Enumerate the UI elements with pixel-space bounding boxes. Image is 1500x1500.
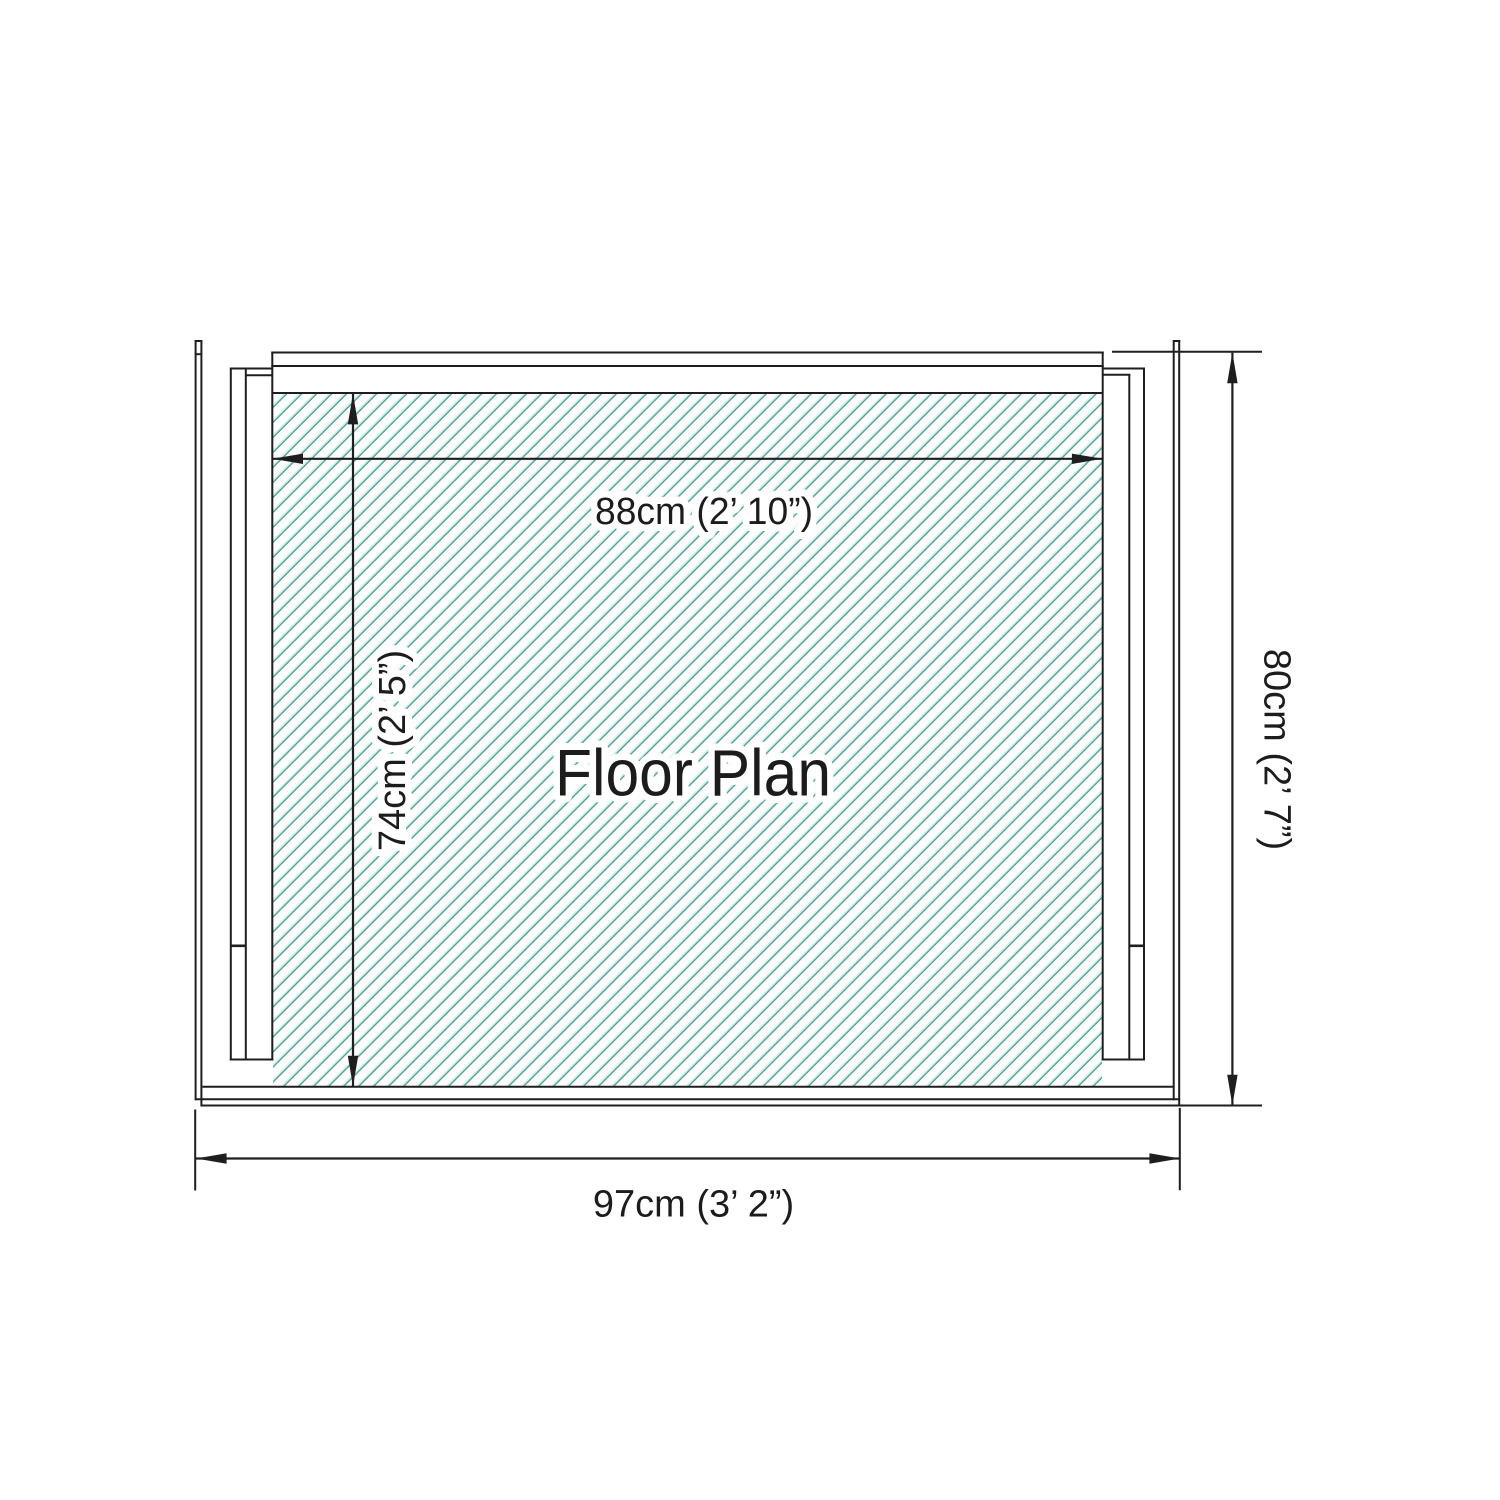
svg-text:80cm (2’ 7”): 80cm (2’ 7”) [1256, 649, 1298, 850]
svg-text:97cm (3’ 2”): 97cm (3’ 2”) [593, 1184, 794, 1226]
svg-text:Floor Plan: Floor Plan [555, 736, 831, 810]
svg-text:88cm (2’ 10”): 88cm (2’ 10”) [595, 491, 813, 533]
svg-text:74cm (2’ 5”): 74cm (2’ 5”) [372, 650, 414, 851]
